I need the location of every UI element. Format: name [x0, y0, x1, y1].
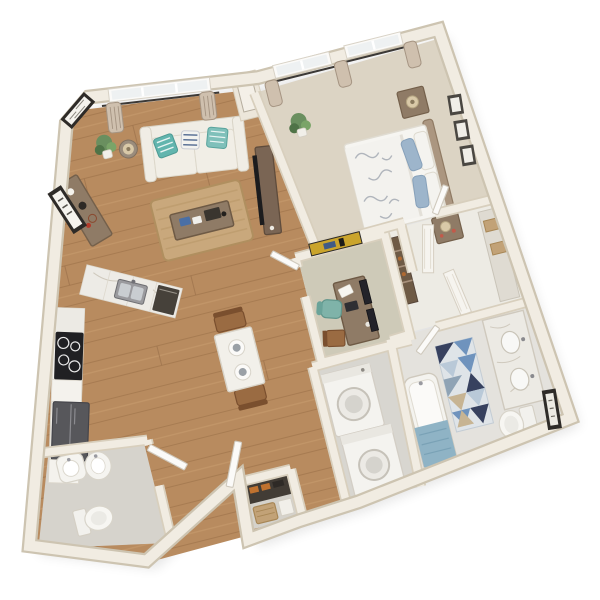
storage-basket [253, 502, 278, 524]
dining-chair-south [234, 383, 268, 411]
open-shelf-cabinet [388, 236, 418, 305]
bathroom-door [416, 325, 440, 354]
building-shadow [0, 11, 589, 600]
entry-closet-floor [240, 471, 300, 530]
living-room-window [100, 77, 222, 134]
coffee-table [170, 201, 235, 241]
living-room [46, 96, 292, 283]
washer [321, 363, 385, 437]
floor-plant [92, 132, 119, 161]
den-floor [297, 234, 411, 363]
sofa [140, 116, 250, 183]
floor-plan-3d-render [0, 0, 600, 600]
powder-toilet [72, 502, 115, 536]
nightstand-foot-side [431, 212, 463, 244]
closet-door-panel-2 [443, 269, 471, 316]
laundry-floor [314, 346, 425, 507]
hardwood-planks [0, 67, 390, 583]
den-art-strip [309, 232, 362, 256]
bathroom-toilet [496, 405, 539, 441]
powder-sinks [55, 445, 114, 489]
closet-shelf [478, 207, 520, 301]
powder-room [55, 445, 126, 537]
nightstand-window-side [397, 86, 430, 119]
desk-monitor-2 [366, 309, 378, 332]
wooden-chair [322, 330, 345, 347]
bathroom [393, 310, 556, 474]
doors [102, 183, 507, 505]
side-table-lamp [117, 138, 139, 160]
walkin-closet-floor [382, 201, 526, 333]
powder-room-floor [17, 432, 169, 574]
desk-monitor-1 [359, 279, 372, 304]
double-vanity [482, 310, 545, 409]
bathtub [402, 371, 459, 474]
bedroom-window-2 [330, 29, 422, 88]
sideboard [56, 174, 113, 246]
range-cooktop [54, 332, 84, 381]
dryer [340, 424, 406, 499]
hardwood-floor [0, 62, 382, 590]
desk [333, 276, 381, 346]
dining-chair-north [213, 306, 247, 333]
entry-door-ajar [226, 441, 242, 487]
media-console-tv [251, 146, 281, 236]
jute-rug [150, 179, 254, 261]
den-office [302, 236, 425, 352]
kitchen [0, 244, 222, 493]
refrigerator [51, 402, 89, 461]
living-art-left-wall [47, 185, 87, 234]
entry-closet [244, 473, 298, 525]
building [0, 0, 589, 600]
laundry-closet [321, 362, 406, 500]
den-door [270, 251, 299, 270]
bedroom-plant [286, 111, 313, 140]
closet-door-panel-1 [423, 225, 434, 273]
living-art-chamfer [60, 92, 95, 129]
walk-in-closet [411, 206, 520, 322]
powder-room-door [147, 444, 187, 470]
bathroom-art [542, 388, 562, 430]
kitchen-appliance-run [48, 308, 92, 484]
task-chair [316, 299, 342, 319]
tub-towel [414, 420, 457, 470]
shoe-shelf [244, 473, 293, 504]
bedroom [286, 81, 464, 272]
dining-table [214, 327, 265, 392]
dining-nook [209, 305, 270, 412]
kitchen-sink-counter [80, 265, 182, 318]
built-in-microwave [152, 285, 180, 316]
bathroom-floor [323, 298, 575, 499]
queen-bed [343, 119, 456, 236]
bedroom-gallery-frames [447, 93, 476, 167]
bedroom-window-1 [261, 50, 344, 107]
walls [0, 3, 580, 592]
windows [95, 13, 423, 148]
floorplan-canvas [0, 0, 600, 600]
wall-art [26, 0, 566, 535]
geometric-rug [435, 337, 493, 432]
tv-screen [252, 155, 264, 225]
bedroom-floor [256, 35, 496, 251]
bedroom-door [432, 185, 448, 215]
